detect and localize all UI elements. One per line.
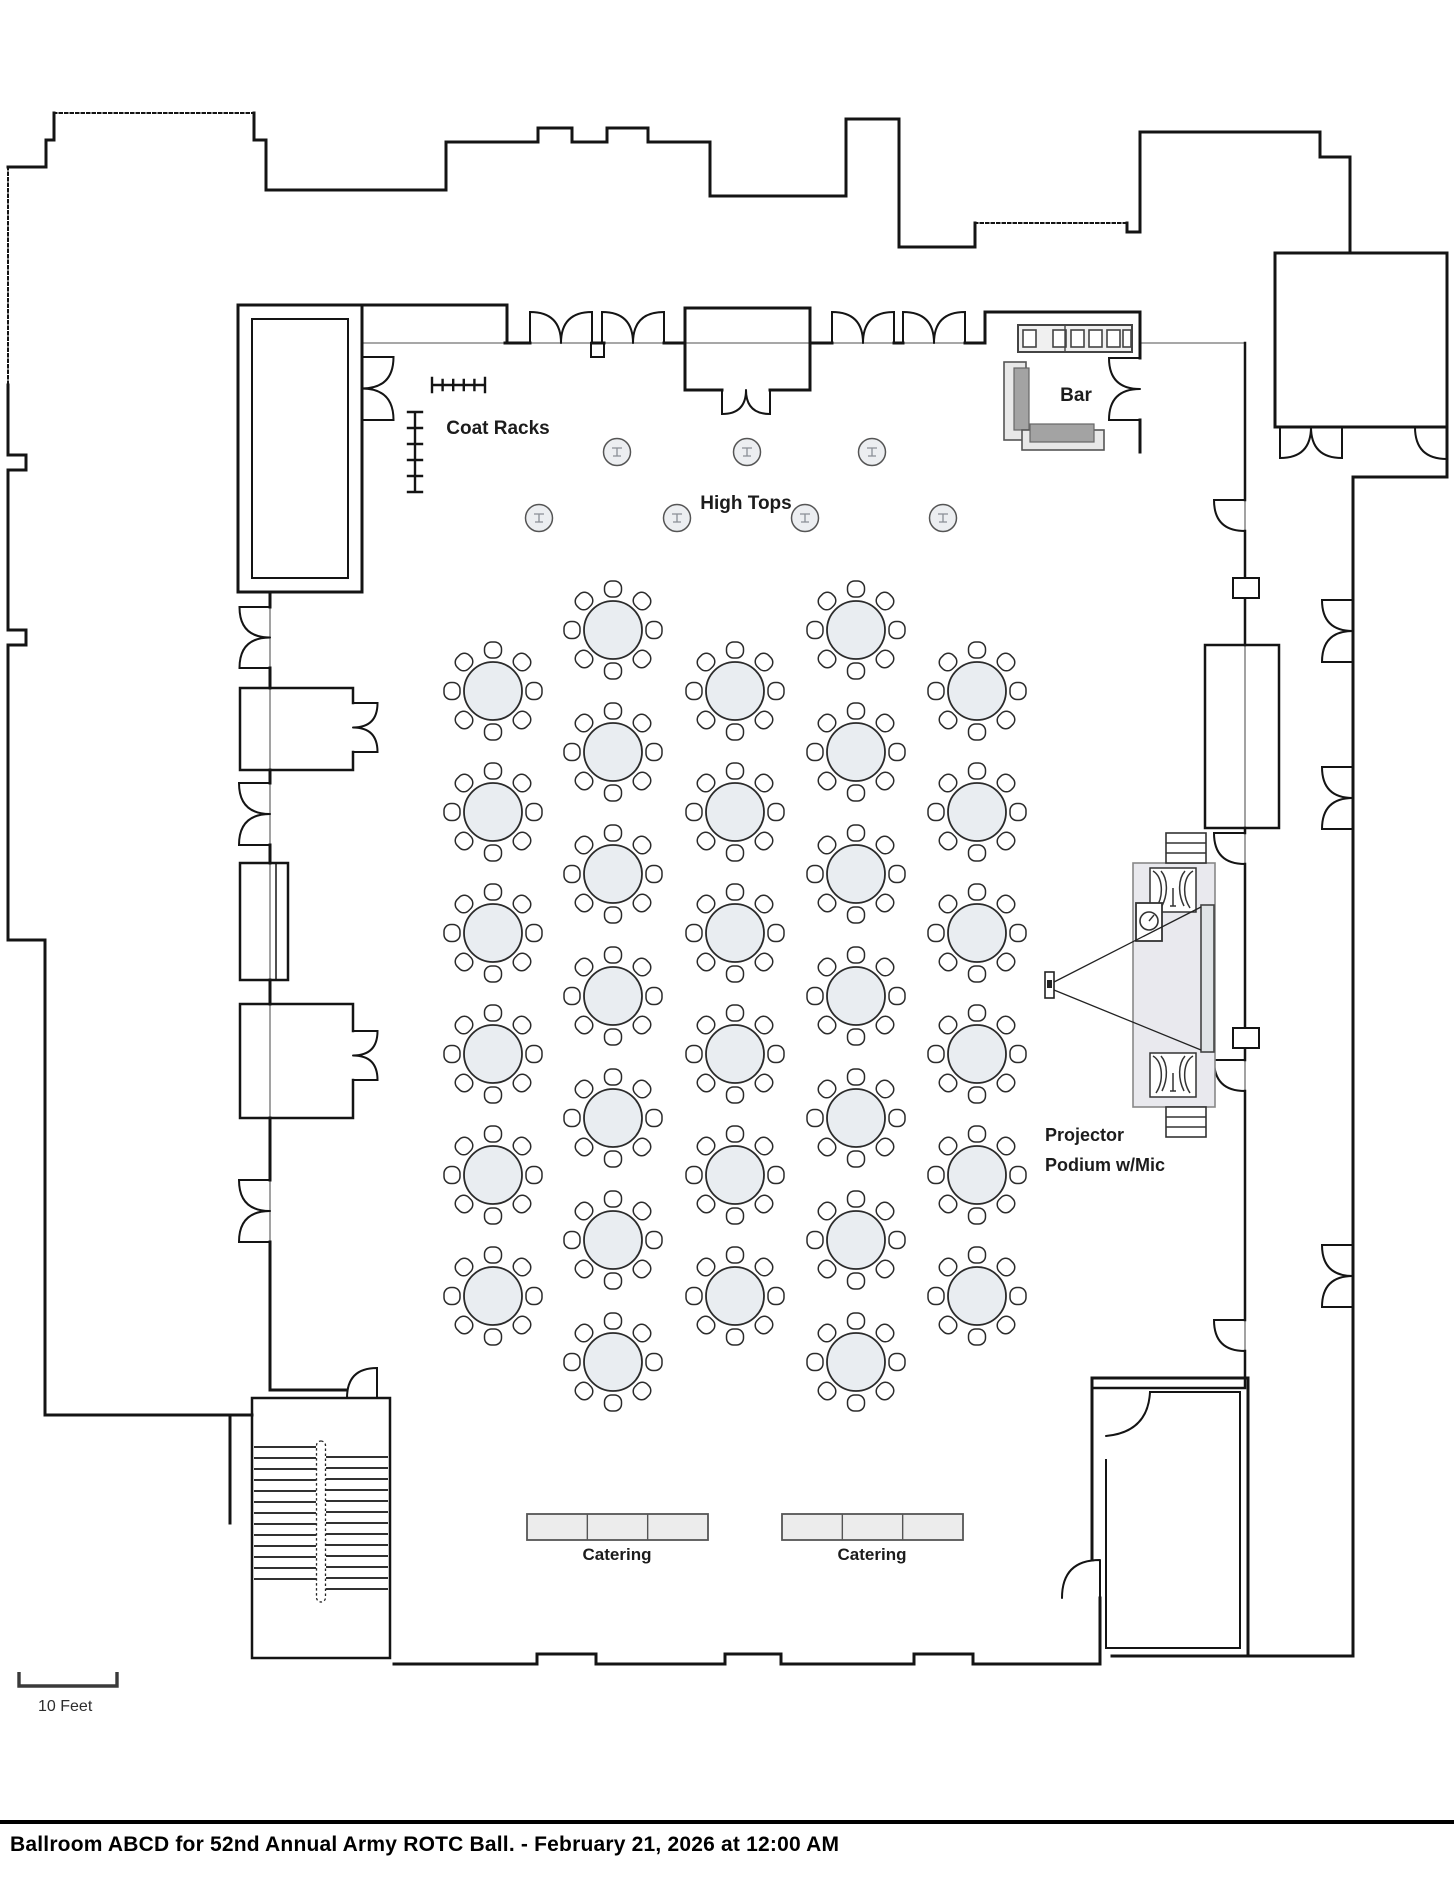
door-arc	[347, 1368, 377, 1398]
table-top	[827, 601, 885, 659]
stage-area	[1045, 833, 1215, 1137]
bar-label: Bar	[1060, 385, 1092, 406]
bottom-right-room-outer	[1092, 1378, 1248, 1656]
chair	[605, 1191, 622, 1207]
chair	[686, 1288, 702, 1305]
banquet-table	[807, 947, 905, 1045]
chair	[768, 804, 784, 821]
banquet-table	[807, 825, 905, 923]
table-top	[706, 1267, 764, 1325]
door-arc	[1062, 1560, 1100, 1598]
chair	[646, 1110, 662, 1127]
chair	[1010, 1288, 1026, 1305]
table-top	[827, 723, 885, 781]
chair	[605, 663, 622, 679]
high-tops-label: High Tops	[700, 493, 791, 514]
chair	[1010, 804, 1026, 821]
chair	[1010, 683, 1026, 700]
chair	[768, 1288, 784, 1305]
chair	[564, 744, 580, 761]
chair	[889, 866, 905, 883]
building-outline-dotted	[8, 113, 1127, 385]
chair	[727, 1208, 744, 1224]
door-arc	[602, 312, 664, 343]
high-top-table	[734, 439, 761, 466]
chair	[969, 1005, 986, 1021]
chair	[848, 1151, 865, 1167]
chair	[928, 925, 944, 942]
chair	[485, 1126, 502, 1142]
catering-right-label: Catering	[838, 1545, 907, 1564]
chair	[727, 845, 744, 861]
chair	[928, 804, 944, 821]
chair	[807, 622, 823, 639]
chair	[444, 1288, 460, 1305]
wall-fixture-box	[1233, 578, 1259, 598]
banquet-table	[928, 1126, 1026, 1224]
table-top	[584, 1211, 642, 1269]
left-wall-segments	[270, 592, 347, 1390]
chair	[444, 1167, 460, 1184]
left-alcove-2	[240, 1004, 353, 1118]
chair	[605, 1273, 622, 1289]
high-top-table	[526, 505, 553, 532]
chair	[848, 1069, 865, 1085]
chair	[848, 703, 865, 719]
banquet-table	[928, 763, 1026, 861]
chair	[646, 1354, 662, 1371]
chair	[889, 622, 905, 639]
high-top-tables	[526, 439, 957, 532]
chair	[969, 884, 986, 900]
door-arc	[1214, 500, 1245, 531]
chair	[807, 1232, 823, 1249]
building-outline-top	[254, 113, 1350, 253]
scale-bar-bracket	[19, 1672, 117, 1686]
banquet-table	[564, 825, 662, 923]
high-top-table	[792, 505, 819, 532]
wall-fixture-box	[1233, 1028, 1259, 1048]
chair	[564, 622, 580, 639]
plan-title: Ballroom ABCD for 52nd Annual Army ROTC …	[0, 1824, 1454, 1857]
door-arc	[239, 1180, 270, 1242]
chair	[727, 1005, 744, 1021]
table-top	[584, 967, 642, 1025]
table-top	[584, 1089, 642, 1147]
chair	[526, 804, 542, 821]
chair	[727, 724, 744, 740]
top-wall-notch	[591, 343, 604, 357]
chair	[605, 1313, 622, 1329]
chair	[807, 866, 823, 883]
chair	[605, 1029, 622, 1045]
chair	[686, 1167, 702, 1184]
door-arc	[1322, 1245, 1353, 1307]
banquet-tables	[444, 581, 1026, 1411]
banquet-table	[807, 1313, 905, 1411]
door-arc	[353, 703, 378, 752]
door-arc	[832, 312, 894, 343]
banquet-table	[444, 1126, 542, 1224]
chair	[848, 825, 865, 841]
chair	[727, 1126, 744, 1142]
ballroom-topleft-wall	[362, 305, 507, 343]
chair	[848, 1191, 865, 1207]
chair	[485, 763, 502, 779]
chair	[727, 763, 744, 779]
chair	[444, 804, 460, 821]
chair	[969, 763, 986, 779]
table-top	[827, 845, 885, 903]
chair	[928, 683, 944, 700]
table-top	[827, 1333, 885, 1391]
chair	[969, 1329, 986, 1345]
projection-screen	[1201, 905, 1214, 1052]
chair	[848, 1029, 865, 1045]
floorplan-canvas: Coat Racks High Tops Bar	[0, 0, 1454, 1881]
chair	[646, 622, 662, 639]
chair	[768, 683, 784, 700]
chair	[526, 925, 542, 942]
door-arc	[362, 357, 394, 420]
chair	[564, 1232, 580, 1249]
chair	[564, 866, 580, 883]
podium-with-mic	[1136, 903, 1162, 941]
chair	[605, 1395, 622, 1411]
catering-table-run	[782, 1514, 963, 1540]
table-top	[827, 1211, 885, 1269]
scale-bar	[19, 1672, 117, 1686]
staircase	[254, 1441, 388, 1602]
table-top	[948, 904, 1006, 962]
chair	[526, 1288, 542, 1305]
stair-room	[252, 1398, 390, 1658]
high-top-table	[604, 439, 631, 466]
banquet-table	[686, 1005, 784, 1103]
stair-treads	[254, 1447, 388, 1589]
door-arc	[530, 312, 592, 343]
table-top	[948, 1267, 1006, 1325]
banquet-table	[807, 581, 905, 679]
banquet-table	[564, 1313, 662, 1411]
high-top-table	[859, 439, 886, 466]
banquet-table	[928, 884, 1026, 982]
chair	[485, 966, 502, 982]
chair	[848, 907, 865, 923]
chair	[686, 804, 702, 821]
table-top	[827, 967, 885, 1025]
chair	[727, 1247, 744, 1263]
chair	[969, 1247, 986, 1263]
banquet-table	[444, 642, 542, 740]
chair	[485, 642, 502, 658]
chair	[969, 642, 986, 658]
catering-tables	[527, 1514, 963, 1540]
chair	[848, 785, 865, 801]
chair	[727, 642, 744, 658]
table-top	[706, 662, 764, 720]
chair	[444, 925, 460, 942]
chair	[969, 1208, 986, 1224]
table-top	[464, 662, 522, 720]
chair	[1010, 925, 1026, 942]
door-arc	[1322, 600, 1353, 662]
top-right-room	[1275, 253, 1447, 427]
chair	[889, 1354, 905, 1371]
table-top	[706, 1025, 764, 1083]
chair	[564, 988, 580, 1005]
chair	[444, 683, 460, 700]
chair	[686, 1046, 702, 1063]
left-shaft	[240, 863, 288, 980]
table-top	[584, 601, 642, 659]
building-outline-left	[8, 113, 252, 1523]
door-arc	[1214, 1320, 1245, 1351]
banquet-table	[686, 1247, 784, 1345]
banquet-table	[564, 703, 662, 801]
chair	[969, 724, 986, 740]
table-top	[827, 1089, 885, 1147]
chair	[444, 1046, 460, 1063]
chair	[807, 1110, 823, 1127]
chair	[605, 1151, 622, 1167]
chair	[969, 1126, 986, 1142]
table-top	[706, 904, 764, 962]
chair	[646, 1232, 662, 1249]
chair	[646, 744, 662, 761]
chair	[485, 724, 502, 740]
chair	[807, 744, 823, 761]
chair	[564, 1354, 580, 1371]
left-alcove-1	[240, 688, 353, 770]
banquet-table	[807, 703, 905, 801]
door-arc	[1415, 427, 1447, 459]
bar-counter-vertical-top	[1014, 368, 1029, 430]
door-arc	[1214, 1060, 1245, 1091]
door-arc	[1322, 767, 1353, 829]
chair	[485, 1005, 502, 1021]
door-arc	[240, 607, 271, 668]
stair-divider	[317, 1441, 326, 1602]
coat-closet-outer	[238, 305, 362, 592]
chair	[969, 966, 986, 982]
chair	[928, 1288, 944, 1305]
table-top	[948, 1025, 1006, 1083]
table-top	[706, 783, 764, 841]
table-top	[464, 1146, 522, 1204]
table-top	[706, 1146, 764, 1204]
door-arc	[239, 783, 270, 845]
table-top	[948, 1146, 1006, 1204]
banquet-table	[928, 1247, 1026, 1345]
chair	[605, 703, 622, 719]
chair	[889, 744, 905, 761]
chair	[807, 988, 823, 1005]
chair	[526, 683, 542, 700]
banquet-table	[564, 581, 662, 679]
chair	[928, 1167, 944, 1184]
coat-racks-label: Coat Racks	[446, 418, 550, 439]
chair	[646, 988, 662, 1005]
banquet-table	[807, 1069, 905, 1167]
banquet-table	[444, 1005, 542, 1103]
chair	[768, 1046, 784, 1063]
chair	[727, 1329, 744, 1345]
table-top	[464, 783, 522, 841]
banquet-table	[686, 1126, 784, 1224]
chair	[969, 845, 986, 861]
chair	[889, 988, 905, 1005]
catering-table	[782, 1514, 963, 1540]
chair	[889, 1110, 905, 1127]
banquet-table	[444, 1247, 542, 1345]
catering-table	[527, 1514, 708, 1540]
chair	[485, 1208, 502, 1224]
high-top-table	[664, 505, 691, 532]
banquet-table	[564, 1069, 662, 1167]
chair	[848, 1395, 865, 1411]
table-top	[584, 845, 642, 903]
high-top-table	[930, 505, 957, 532]
chair	[848, 1313, 865, 1329]
bar-counter-horizontal-top	[1030, 424, 1094, 442]
banquet-table	[928, 642, 1026, 740]
coat-rack-horizontal	[432, 378, 485, 392]
coat-closet-inner	[252, 319, 348, 578]
chair	[485, 884, 502, 900]
chair	[646, 866, 662, 883]
coat-rack-vertical	[408, 412, 422, 492]
chair	[1010, 1046, 1026, 1063]
chair	[889, 1232, 905, 1249]
ballroom-bottom-wall	[394, 1598, 1100, 1664]
table-top	[464, 904, 522, 962]
chair	[526, 1046, 542, 1063]
table-top	[464, 1267, 522, 1325]
chair	[564, 1110, 580, 1127]
banquet-table	[686, 763, 784, 861]
chair	[928, 1046, 944, 1063]
podium-label: Podium w/Mic	[1045, 1155, 1165, 1175]
floorplan-svg: Coat Racks High Tops Bar	[0, 0, 1454, 1881]
banquet-table	[686, 884, 784, 982]
chair	[1010, 1167, 1026, 1184]
table-top	[948, 783, 1006, 841]
entry-vestibule	[685, 308, 810, 390]
chair	[848, 1273, 865, 1289]
banquet-table	[807, 1191, 905, 1289]
table-top	[584, 1333, 642, 1391]
chair	[727, 884, 744, 900]
chair	[605, 785, 622, 801]
chair	[686, 683, 702, 700]
chair	[727, 1087, 744, 1103]
doors	[239, 312, 1447, 1598]
chair	[686, 925, 702, 942]
chair	[969, 1087, 986, 1103]
chair	[605, 1069, 622, 1085]
chair	[605, 581, 622, 597]
chair	[485, 1329, 502, 1345]
projector-label: Projector	[1045, 1125, 1124, 1145]
banquet-table	[444, 763, 542, 861]
chair	[605, 907, 622, 923]
chair	[807, 1354, 823, 1371]
chair	[768, 925, 784, 942]
door-arc	[1109, 358, 1140, 420]
chair	[605, 947, 622, 963]
banquet-table	[564, 947, 662, 1045]
table-top	[464, 1025, 522, 1083]
banquet-table	[444, 884, 542, 982]
table-top	[948, 662, 1006, 720]
door-arc	[1106, 1392, 1150, 1436]
chair	[848, 947, 865, 963]
door-arc	[1280, 427, 1342, 458]
banquet-table	[564, 1191, 662, 1289]
door-arc	[353, 1031, 378, 1080]
catering-left-label: Catering	[583, 1545, 652, 1564]
catering-table-run	[527, 1514, 708, 1540]
scale-bar-label: 10 Feet	[38, 1698, 93, 1715]
chair	[768, 1167, 784, 1184]
title-bar: Ballroom ABCD for 52nd Annual Army ROTC …	[0, 1820, 1454, 1857]
banquet-table	[928, 1005, 1026, 1103]
banquet-table	[686, 642, 784, 740]
chair	[605, 825, 622, 841]
chair	[485, 845, 502, 861]
door-arc	[1214, 833, 1245, 864]
chair	[848, 663, 865, 679]
chair	[848, 581, 865, 597]
chair	[485, 1247, 502, 1263]
chair	[526, 1167, 542, 1184]
door-arc	[903, 312, 965, 343]
table-top	[584, 723, 642, 781]
chair	[485, 1087, 502, 1103]
right-storage-room	[1205, 645, 1279, 828]
building-outline-right	[1248, 427, 1447, 1656]
door-arc	[722, 390, 770, 414]
chair	[727, 966, 744, 982]
